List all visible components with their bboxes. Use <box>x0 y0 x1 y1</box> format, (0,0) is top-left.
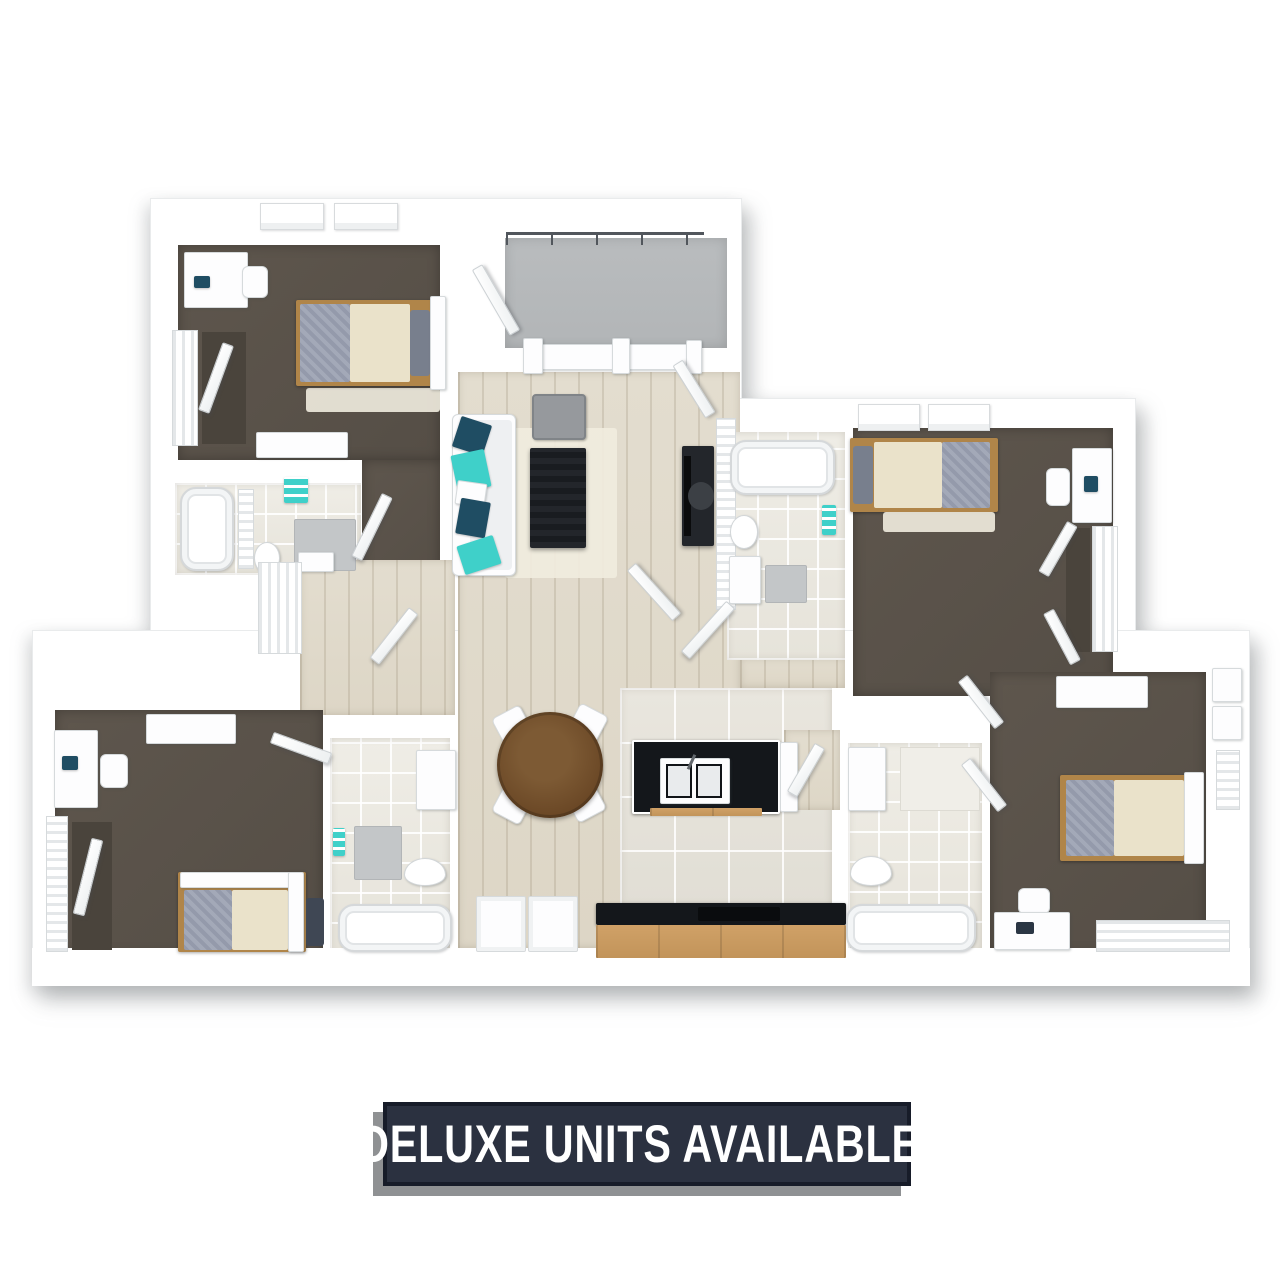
bathtub-bathroom-tl <box>180 487 234 571</box>
shelf-bedroom-br <box>1056 676 1148 708</box>
half-wall-post-left <box>523 338 543 374</box>
kitchen-cooktop <box>698 907 780 921</box>
washer <box>476 896 526 952</box>
window-bedroom-tl-1 <box>260 203 324 230</box>
towels-bathroom-tr <box>822 505 836 535</box>
laptop-bedroom-bl <box>62 756 78 770</box>
window-bedroom-tl-2 <box>334 203 398 230</box>
bed-headboard-bedroom-tl <box>430 296 446 390</box>
bed-blanket-bedroom-br <box>1066 780 1114 856</box>
shower-bathroom-br <box>900 747 980 811</box>
closet-bedroom-tr <box>1092 526 1118 652</box>
bed-mattress-bedroom-br <box>1114 780 1184 856</box>
bed-blanket-bedroom-tr <box>942 442 990 508</box>
screenshot-canvas: DELUXE UNITS AVAILABLE! <box>0 0 1280 1280</box>
balcony-railing <box>506 232 704 245</box>
closet-shelves-bedroom-bl <box>46 816 68 952</box>
toilet-bathroom-br <box>850 856 892 886</box>
bed-pillow-bedroom-tl <box>410 310 430 376</box>
entry-patio-floor <box>505 238 727 348</box>
deluxe-banner: DELUXE UNITS AVAILABLE! <box>383 1102 911 1186</box>
towels-bathroom-tl <box>284 477 308 503</box>
half-wall-post-mid <box>612 338 630 374</box>
floor-plan <box>0 0 1280 1280</box>
closet-shelf-br-1 <box>1212 668 1242 702</box>
laptop-bedroom-tr <box>1084 476 1098 492</box>
kitchen-hall-floor <box>740 658 845 688</box>
vanity-bathroom-bl <box>416 750 456 810</box>
closet-bedroom-tl <box>172 330 198 446</box>
island-wood-trim <box>650 808 762 816</box>
bathtub-bathroom-tr <box>730 440 835 495</box>
chair-bedroom-br <box>1018 888 1050 914</box>
bed-blanket-bedroom-bl <box>184 890 232 950</box>
sink-bathroom-tr <box>729 556 761 604</box>
shower-bathroom-bl <box>354 826 402 880</box>
island-sink-basin-right <box>696 764 722 798</box>
cushion-navy-bedroom-bl <box>306 898 324 946</box>
towels-bathroom-bl <box>333 828 345 856</box>
laptop-bedroom-tl <box>194 276 210 288</box>
desk-items-bedroom-br <box>1016 922 1034 934</box>
chair-bedroom-tr <box>1046 468 1070 506</box>
shower-bathroom-tr <box>765 565 807 603</box>
toilet-bathroom-tr <box>730 515 758 549</box>
shelf-bathroom-tl <box>238 489 254 569</box>
bed-mattress-bedroom-bl <box>232 890 288 950</box>
bed-mattress-bedroom-tr <box>874 442 942 508</box>
bed-headboard-bedroom-bl <box>288 872 304 952</box>
closet-slats-br <box>1216 750 1240 810</box>
bed-headboard-bedroom-br <box>1184 772 1204 864</box>
tv-decor-round <box>688 482 714 510</box>
bed-mattress-bedroom-tl <box>350 304 410 382</box>
rug-bedroom-tr <box>883 512 995 532</box>
bed-pillow-band-bedroom-bl <box>180 872 292 888</box>
dresser-bedroom-bl <box>146 714 236 744</box>
ac-vent-bedroom-br <box>1096 920 1230 952</box>
dining-table <box>497 712 603 818</box>
window-bedroom-tr-1 <box>858 404 920 431</box>
bed-pillow-bedroom-tr <box>853 446 873 504</box>
bathtub-bathroom-bl <box>338 904 452 952</box>
closet-shelf-br-2 <box>1212 706 1242 740</box>
toilet-bathroom-bl <box>404 858 446 886</box>
sink-bathroom-tl <box>298 552 334 572</box>
kitchen-cabinets <box>596 925 846 958</box>
armchair-living <box>532 394 586 440</box>
dresser-bedroom-tl <box>256 432 348 458</box>
window-bedroom-tr-2 <box>928 404 990 431</box>
hallway-floor <box>300 560 455 715</box>
hall-closet <box>258 562 302 654</box>
rug-bedroom-tl <box>306 388 440 412</box>
chair-bedroom-bl <box>100 754 128 788</box>
bathtub-bathroom-br <box>846 904 976 952</box>
sofa-pillow-navy-2 <box>455 498 491 539</box>
vanity-bathroom-br <box>848 747 886 811</box>
banner-label: DELUXE UNITS AVAILABLE! <box>359 1114 934 1175</box>
bed-blanket-bedroom-tl <box>300 304 350 382</box>
closet-interior-bedroom-tr <box>1066 528 1090 652</box>
chair-bedroom-tl <box>242 266 268 298</box>
coffee-table-living <box>530 448 586 548</box>
dryer <box>528 896 578 952</box>
